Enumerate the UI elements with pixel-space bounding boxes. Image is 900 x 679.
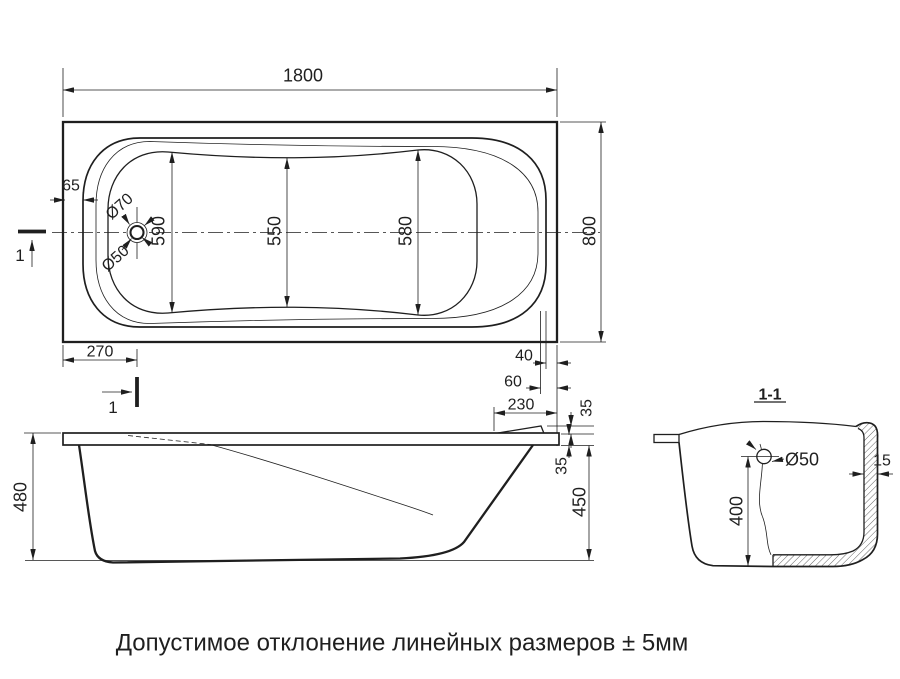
dim-overall-width: 800	[560, 122, 606, 342]
dim-label: 35	[579, 399, 596, 417]
rim-slab	[63, 433, 559, 445]
section-mark-bottom: 1	[102, 377, 137, 417]
dim-label: 40	[515, 348, 533, 365]
section-title: 1-1	[758, 387, 781, 404]
dim-label: 60	[504, 374, 522, 391]
dim-total-height: 480	[10, 433, 61, 560]
dim-label: 35	[554, 457, 571, 475]
dim-label: 590	[148, 216, 168, 246]
dim-label: 270	[87, 344, 114, 361]
dim-label: 65	[62, 178, 80, 195]
dim-label: 580	[395, 216, 415, 246]
dim-overall-length: 1800	[63, 65, 557, 117]
dim-label: 230	[508, 397, 535, 414]
drawing-sheet: 1800 800 590 550 580 65	[0, 0, 900, 679]
dim-label: Ø50	[785, 449, 819, 469]
dim-label: 550	[264, 216, 284, 246]
dim-rim-thickness: 35	[554, 424, 594, 475]
inner-edge-curve	[210, 445, 433, 516]
dim-inner-depth: 400	[726, 457, 748, 567]
dim-label: 480	[10, 482, 30, 512]
far-rim-edge	[679, 422, 856, 435]
section-view: 1-1 Ø50 400 15	[654, 387, 893, 567]
side-view	[25, 426, 594, 563]
wall-inner-edge	[773, 429, 864, 555]
cut-material-hatch	[773, 423, 878, 567]
leader-arrow	[772, 459, 784, 462]
tub-body-outline	[79, 445, 533, 563]
dim-label: 1800	[283, 65, 323, 85]
section-label: 1	[15, 246, 24, 265]
section-mark-left: 1	[15, 232, 46, 268]
bathtub-technical-drawing: 1800 800 590 550 580 65	[0, 0, 900, 679]
left-rim-flange	[654, 435, 679, 443]
dim-drain-offset: 270	[63, 344, 137, 367]
dim-label: 800	[579, 216, 599, 246]
dim-label: 450	[569, 487, 589, 517]
plan-view	[52, 122, 600, 342]
tolerance-caption: Допустимое отклонение линейных размеров …	[116, 629, 689, 656]
section-label: 1	[108, 398, 117, 417]
dim-underrim-height: 450	[569, 446, 589, 561]
leader-arrow	[748, 443, 756, 450]
dim-label: 400	[726, 496, 746, 526]
dim-label: 15	[873, 453, 891, 470]
